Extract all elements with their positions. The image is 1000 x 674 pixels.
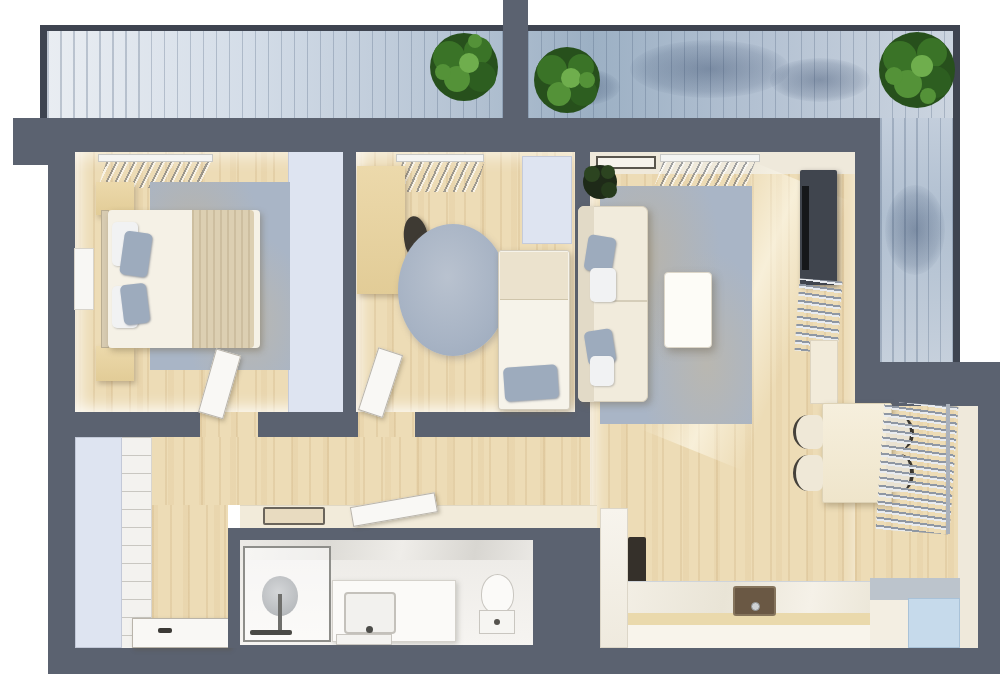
bedroom1-wardrobe bbox=[288, 152, 343, 412]
wall-left bbox=[48, 118, 75, 674]
wall-bottom bbox=[48, 648, 1000, 674]
wall-right-outer bbox=[978, 406, 1000, 674]
kitchen-fridge bbox=[908, 598, 960, 648]
hallway-floor bbox=[75, 437, 590, 505]
dining-chair-left-1 bbox=[793, 415, 823, 449]
bath-mat bbox=[336, 634, 392, 645]
balcony-railing-left bbox=[40, 25, 47, 118]
wall-right-living bbox=[855, 118, 880, 362]
floor-plan bbox=[0, 0, 1000, 674]
entrance-door bbox=[132, 618, 230, 648]
bedroom2-desk bbox=[357, 166, 405, 294]
potted-plant-icon bbox=[582, 156, 620, 206]
bedroom2-window-blinds bbox=[394, 162, 485, 192]
bedroom1-window bbox=[98, 154, 213, 162]
bedroom2-wardrobe bbox=[522, 156, 572, 244]
balcony-shadow bbox=[630, 40, 790, 98]
tall-cabinet-pillar bbox=[810, 340, 838, 404]
tree-icon bbox=[872, 26, 962, 114]
kitchen-tall-cabinet bbox=[600, 508, 628, 648]
wall-left-notch bbox=[13, 118, 48, 165]
bedroom2-bed-duvet bbox=[500, 252, 568, 300]
kitchen-sink bbox=[733, 586, 776, 616]
wall-top bbox=[40, 118, 880, 152]
tree-icon bbox=[423, 27, 505, 105]
wall-dining-top bbox=[837, 362, 1000, 406]
living-window bbox=[660, 154, 760, 162]
bedroom1-blanket bbox=[192, 210, 254, 348]
shower-stand bbox=[278, 594, 282, 634]
dining-chair-left-2 bbox=[793, 455, 823, 491]
coffee-table bbox=[664, 272, 712, 348]
balcony-shadow bbox=[770, 58, 870, 102]
living-pillow-white bbox=[590, 356, 614, 386]
entrance-door-handle bbox=[158, 628, 172, 633]
sink-faucet bbox=[366, 626, 373, 633]
shower-fixtures bbox=[250, 630, 292, 635]
bedroom2-window bbox=[396, 154, 484, 162]
balcony-shadow bbox=[885, 185, 945, 275]
kitchen-counter-grey-top bbox=[870, 578, 960, 600]
bedroom2-door-opening bbox=[358, 412, 415, 437]
toilet-bowl bbox=[481, 574, 514, 614]
bedroom2-round-rug bbox=[398, 224, 508, 356]
bedroom1-pillow-grey bbox=[120, 283, 151, 326]
wall-bedroom1-bedroom2 bbox=[343, 152, 356, 437]
balcony-privacy-divider bbox=[503, 0, 528, 118]
living-pillow-white bbox=[590, 268, 616, 302]
wall-bedrooms-bottom bbox=[48, 412, 590, 437]
kitchen-oven bbox=[628, 537, 646, 583]
entry-panel-cabinet bbox=[122, 437, 152, 648]
shelf-tray bbox=[263, 507, 325, 525]
dining-wall-face bbox=[958, 406, 978, 648]
bedroom1-wall-picture bbox=[74, 248, 94, 310]
kitchen-faucet bbox=[751, 602, 760, 611]
bedroom1-nightstand-bottom bbox=[96, 346, 134, 381]
bedroom2-pillow-grey bbox=[503, 364, 559, 402]
radiator-side-rail bbox=[946, 404, 950, 534]
kitchen-counter-front bbox=[628, 625, 870, 648]
tv-screen bbox=[802, 186, 809, 270]
entry-closet bbox=[75, 437, 122, 648]
bedroom1-door-opening bbox=[200, 412, 258, 437]
kitchen-counter-corner bbox=[870, 600, 910, 648]
toilet-flush-button bbox=[494, 619, 500, 625]
tree-icon bbox=[527, 42, 607, 119]
